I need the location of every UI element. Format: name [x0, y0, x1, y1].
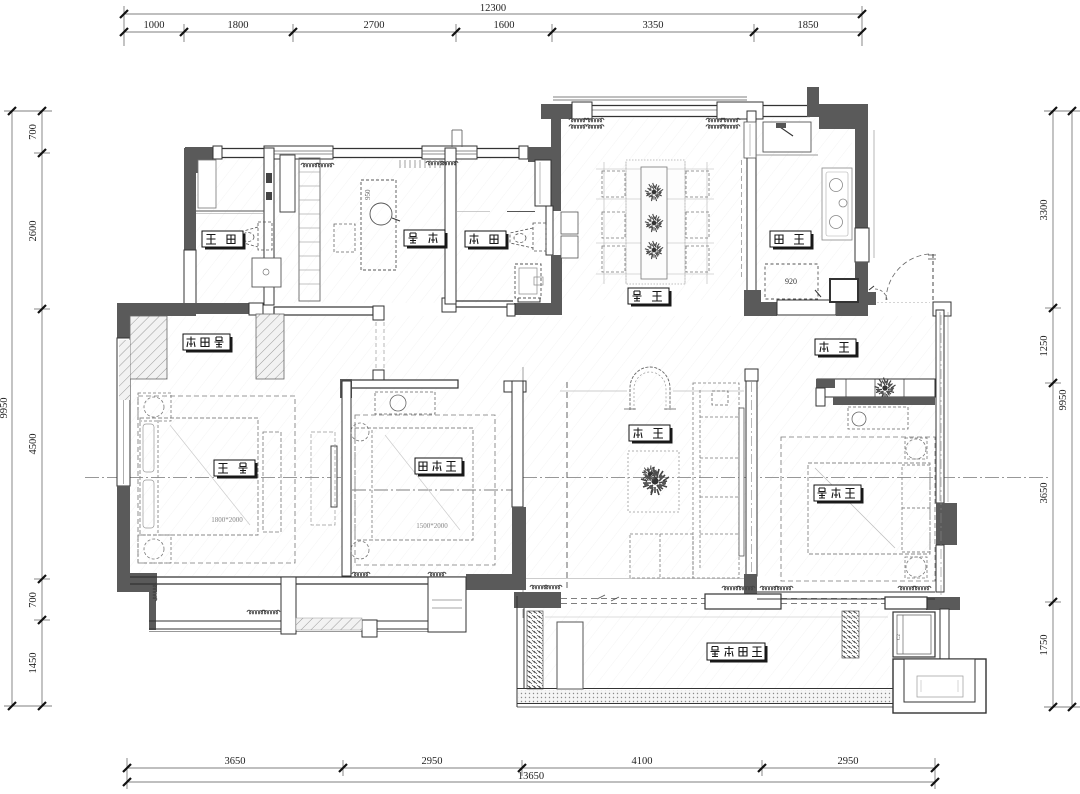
svg-text:3650: 3650 [225, 756, 246, 767]
svg-text:1250: 1250 [1039, 336, 1050, 357]
svg-text:1450: 1450 [28, 653, 39, 674]
svg-text:950: 950 [364, 189, 372, 200]
svg-text:2700: 2700 [364, 20, 385, 31]
svg-text:700: 700 [28, 124, 39, 140]
svg-text:13650: 13650 [518, 771, 544, 782]
svg-text:3300: 3300 [1039, 200, 1050, 221]
svg-text:2950: 2950 [422, 756, 443, 767]
svg-text:C2: C2 [897, 634, 902, 640]
svg-text:1500*2000: 1500*2000 [416, 522, 448, 530]
svg-text:1000: 1000 [144, 20, 165, 31]
svg-text:700: 700 [28, 592, 39, 608]
svg-text:2600: 2600 [28, 221, 39, 242]
svg-text:9950: 9950 [0, 398, 10, 419]
svg-text:1800*2000: 1800*2000 [211, 516, 243, 524]
svg-text:920: 920 [785, 277, 797, 286]
svg-text:4500: 4500 [28, 434, 39, 455]
svg-text:3350: 3350 [643, 20, 664, 31]
svg-text:2950: 2950 [838, 756, 859, 767]
svg-text:1850: 1850 [798, 20, 819, 31]
svg-text:1600: 1600 [494, 20, 515, 31]
svg-text:4100: 4100 [632, 756, 653, 767]
svg-text:9950: 9950 [1058, 390, 1069, 411]
svg-text:1750: 1750 [1039, 635, 1050, 656]
svg-text:1800: 1800 [228, 20, 249, 31]
svg-text:3650: 3650 [1039, 483, 1050, 504]
svg-text:12300: 12300 [480, 3, 506, 14]
